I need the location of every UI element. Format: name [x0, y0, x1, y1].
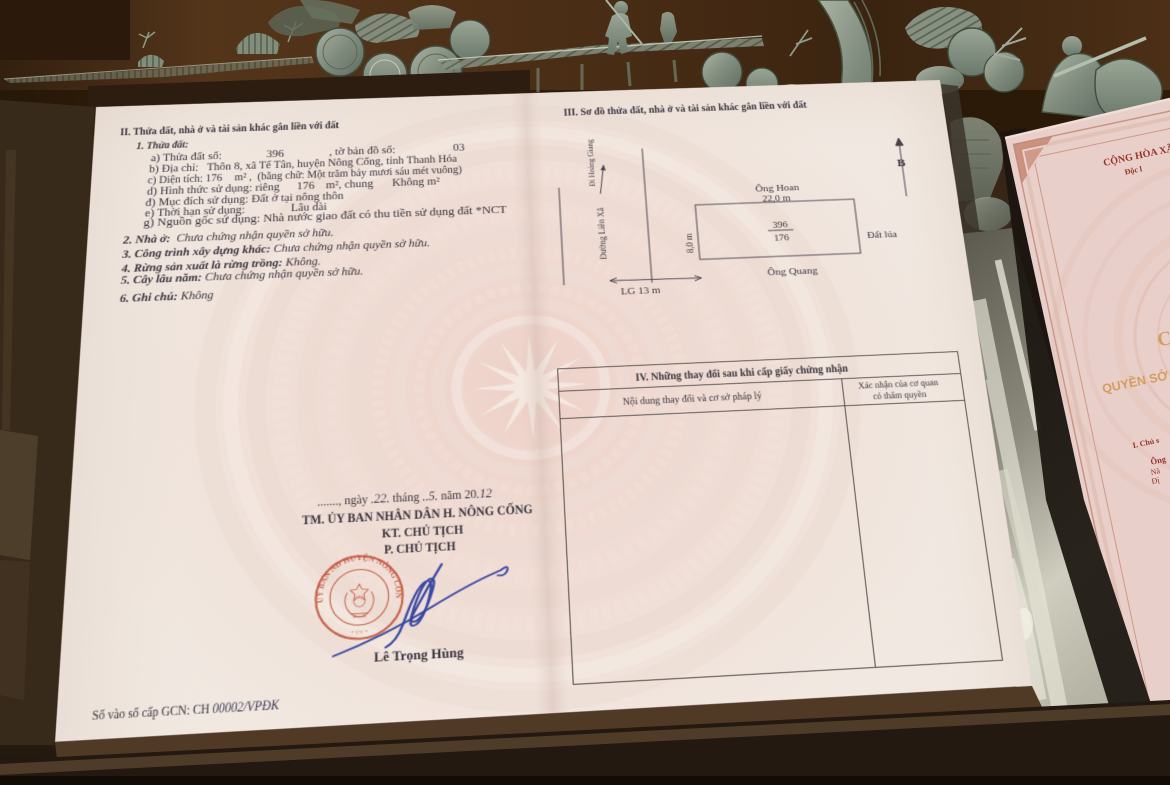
svg-text:22,0 m: 22,0 m [762, 194, 792, 204]
svg-text:B: B [896, 156, 906, 169]
svg-text:396: 396 [772, 221, 789, 231]
svg-text:LG 13 m: LG 13 m [620, 285, 661, 297]
svg-text:Đi Hoàng Giang: Đi Hoàng Giang [585, 139, 597, 186]
svg-text:Ông Quang: Ông Quang [767, 265, 818, 279]
svg-text:176: 176 [773, 234, 790, 244]
svg-text:Đất lúa: Đất lúa [867, 229, 899, 241]
svg-text:8,0 m: 8,0 m [683, 233, 695, 253]
svg-text:Ông Hoan: Ông Hoan [755, 182, 800, 195]
svg-text:Đường Liên Xã: Đường Liên Xã [595, 207, 609, 259]
